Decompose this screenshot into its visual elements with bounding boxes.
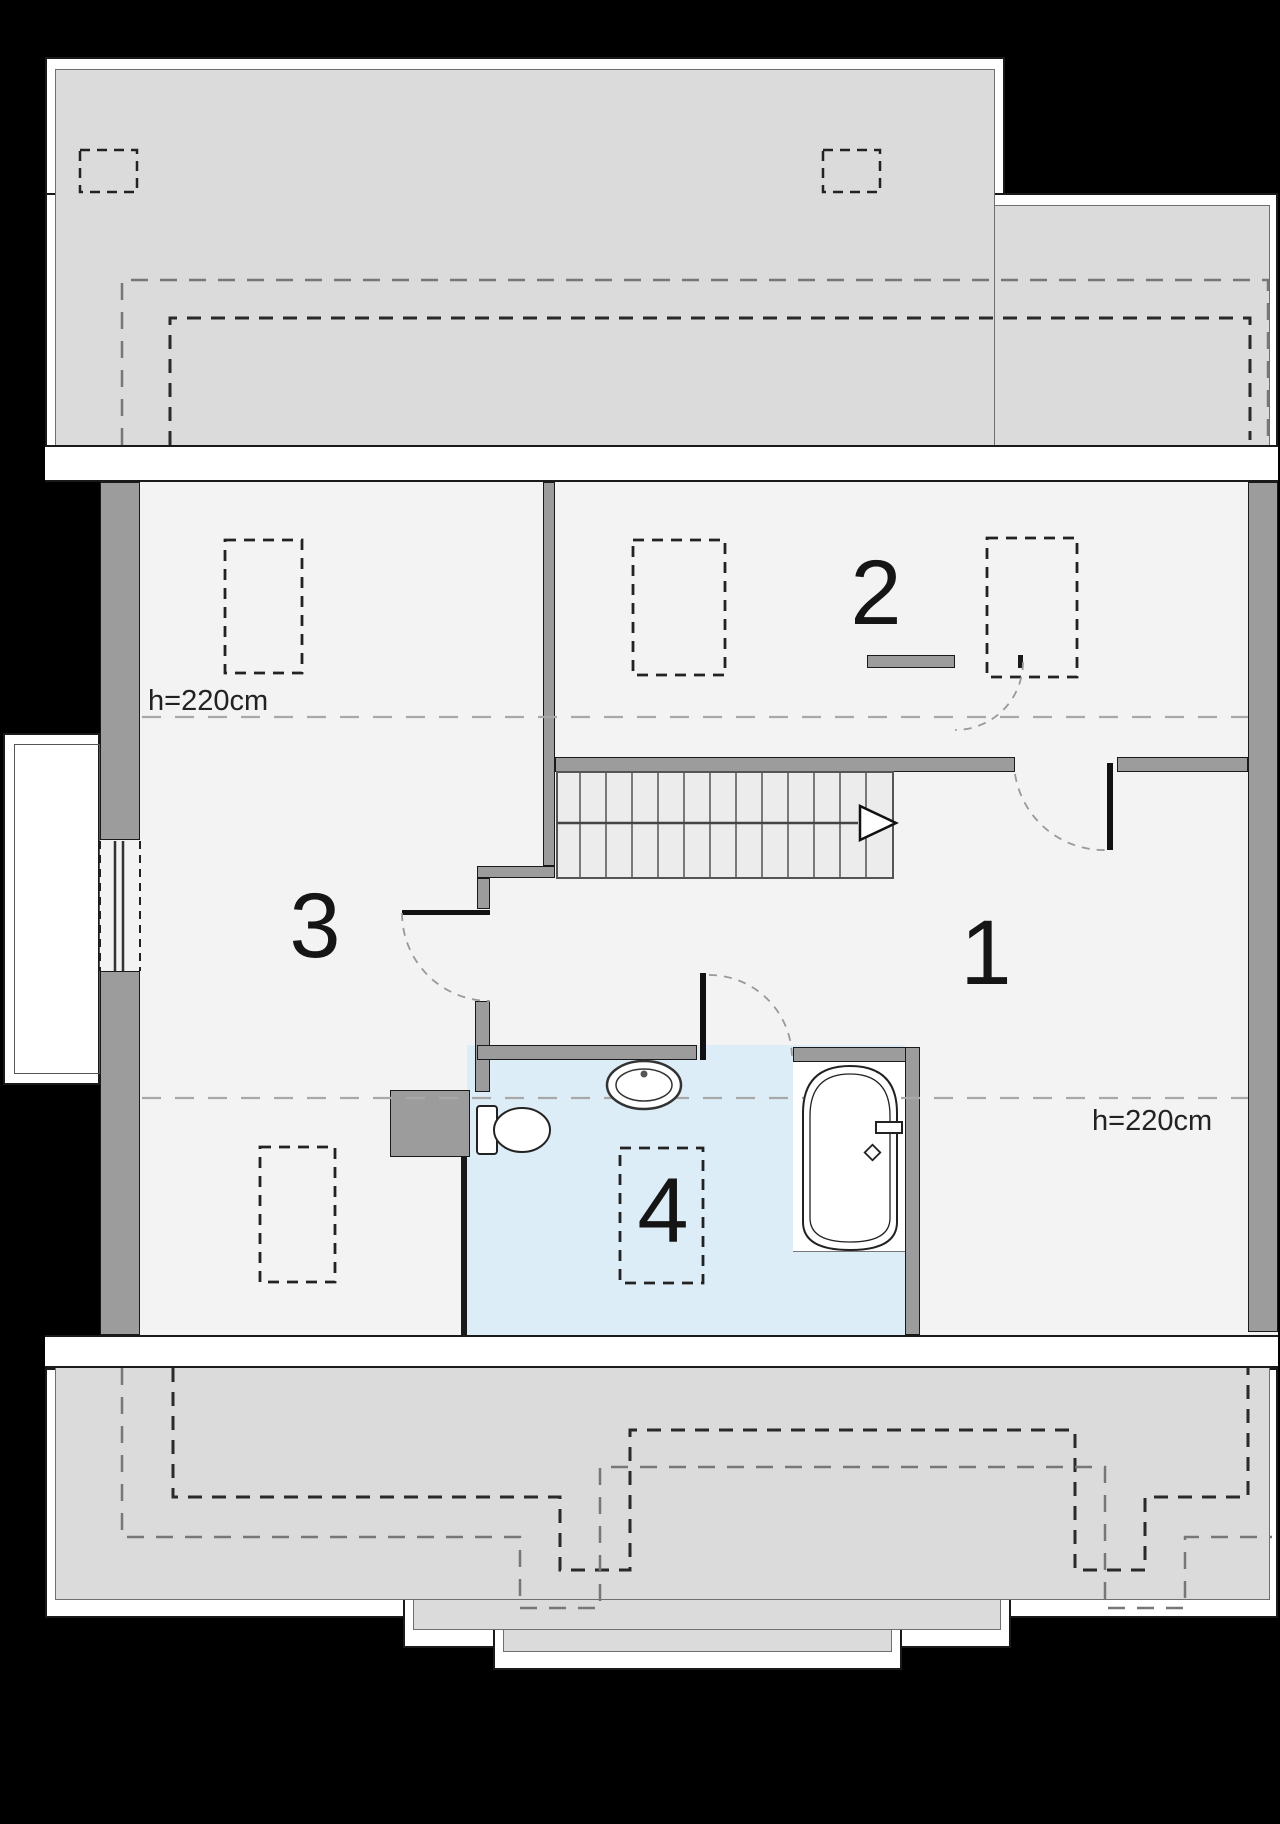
bathtub-faucet (876, 1122, 902, 1133)
roof-hatch-left (80, 150, 137, 192)
roof-bottom-dashed-outer (122, 1368, 1272, 1608)
height-label-left: h=220cm (148, 685, 268, 717)
roof-hatch-right (823, 150, 880, 192)
window (100, 841, 140, 971)
door-swing-stairs (955, 662, 1023, 730)
roof-top-dashed-inner (170, 318, 1250, 445)
room-label-1: 1 (960, 902, 1011, 1004)
room-label-4: 4 (637, 1160, 688, 1262)
roof-top-dashed-outer (122, 280, 1268, 445)
staircase (557, 772, 896, 878)
door-swing-room1 (1015, 774, 1107, 850)
skylight-room2-right (987, 538, 1077, 677)
linework-overlay: 1 2 3 4 h=220cm h=220cm (0, 0, 1280, 1824)
roof-bottom-dashed-inner (173, 1368, 1248, 1570)
room-label-2: 2 (850, 542, 901, 644)
door-swing-room3 (402, 913, 490, 1001)
height-label-right: h=220cm (1092, 1105, 1212, 1137)
room-label-3: 3 (289, 875, 340, 977)
skylight-room2-left (633, 540, 725, 675)
skylight-room3-upper (225, 540, 302, 673)
toilet-icon (477, 1106, 550, 1154)
door-swing-bathroom (709, 975, 792, 1058)
washbasin-icon (607, 1061, 681, 1109)
skylight-room3-lower (260, 1147, 335, 1282)
bathtub-icon (803, 1066, 902, 1250)
floor-plan: 1 2 3 4 h=220cm h=220cm (0, 0, 1280, 1824)
